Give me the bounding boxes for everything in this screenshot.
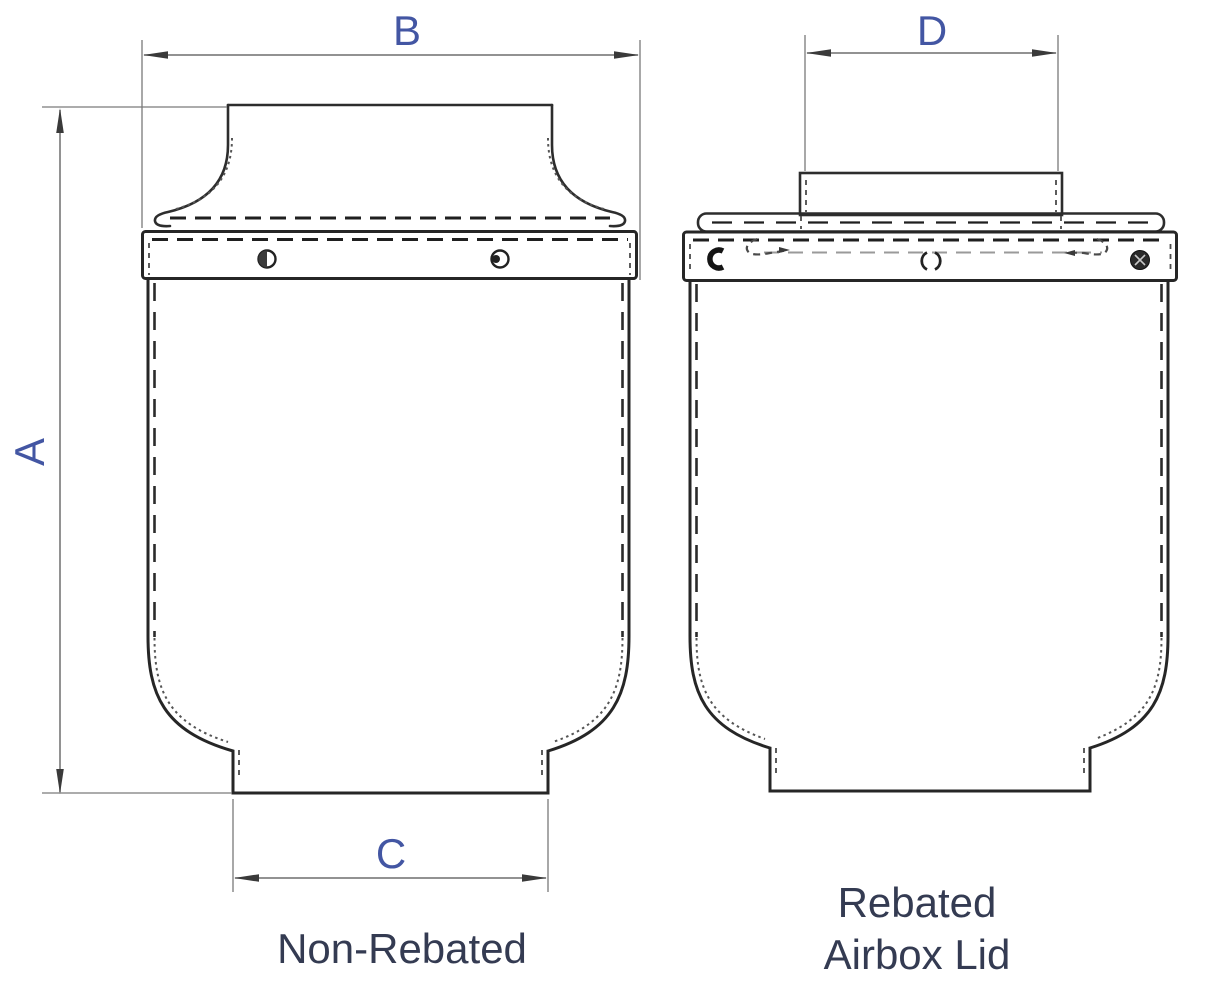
body-left-curve-hidden	[155, 638, 229, 742]
body-left-edge	[690, 281, 770, 791]
dim-A-label: A	[6, 438, 53, 466]
body-left-curve-hidden	[697, 638, 766, 739]
bell-left-surface-line	[176, 138, 232, 209]
rebated-view: D Rebated Airbox Lid	[684, 7, 1177, 978]
dim-C-arrow-left	[234, 874, 259, 882]
dim-C-label: C	[376, 830, 406, 877]
collar	[800, 173, 1062, 215]
body-right-edge	[548, 279, 629, 793]
rebated-caption-line2: Airbox Lid	[824, 931, 1011, 978]
dim-B-arrow-left	[143, 51, 168, 59]
non-rebated-view: A B C Non-Rebated	[6, 7, 640, 972]
body-right-curve-hidden	[1095, 638, 1162, 739]
dim-B-label: B	[393, 7, 421, 54]
dimension-A: A	[6, 107, 232, 794]
screw-hole-right	[492, 251, 509, 268]
dim-D-arrow-left	[806, 49, 831, 57]
dim-B-arrow-right	[614, 51, 639, 59]
center-mark	[922, 253, 941, 270]
technical-drawing-page: A B C Non-Rebated	[0, 0, 1214, 995]
screw-hole-right	[1131, 251, 1150, 270]
body-left-edge	[148, 279, 233, 793]
non-rebated-caption: Non-Rebated	[277, 925, 527, 972]
dimension-C: C	[233, 799, 548, 892]
dim-A-arrow-down	[56, 769, 64, 794]
bell-right-side	[552, 105, 625, 226]
dimension-D: D	[805, 7, 1058, 171]
rebated-caption-line1: Rebated	[838, 879, 997, 926]
dim-A-arrow-up	[56, 108, 64, 133]
bell-right-surface-line	[548, 138, 604, 209]
body-right-edge	[1090, 281, 1168, 791]
bell-left-side	[155, 105, 228, 226]
screw-hole-left	[259, 251, 276, 268]
dim-C-arrow-right	[522, 874, 547, 882]
screw-hole-left	[710, 250, 723, 268]
airbox-lid-drawing: A B C Non-Rebated	[0, 0, 1214, 995]
dim-D-arrow-right	[1032, 49, 1057, 57]
body-right-curve-hidden	[553, 638, 623, 742]
dim-D-label: D	[917, 7, 947, 54]
